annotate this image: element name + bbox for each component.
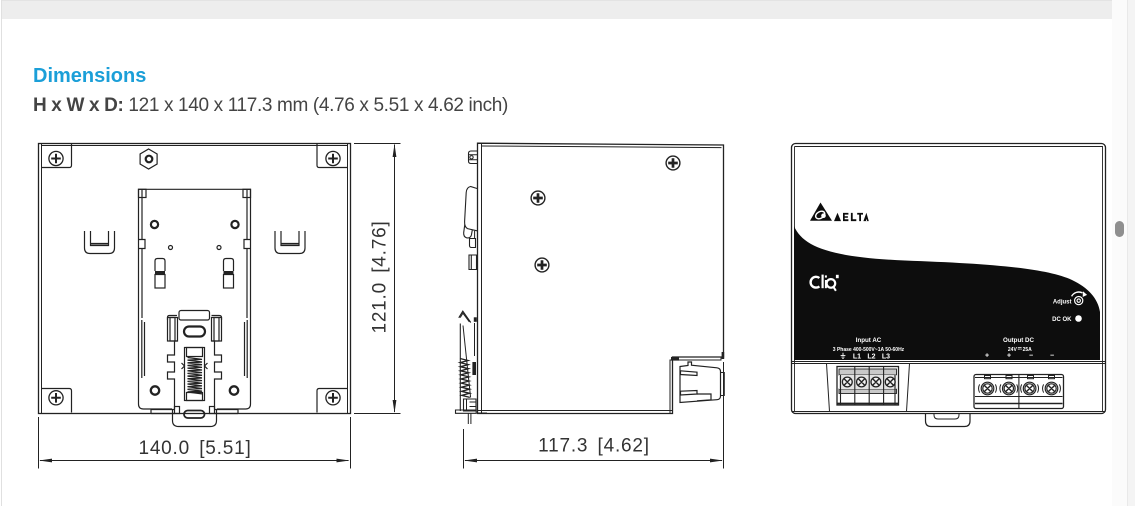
svg-text:DC OK: DC OK xyxy=(1052,317,1072,323)
svg-text:Input AC: Input AC xyxy=(856,337,882,344)
svg-text:3 Phase 400-500V~1A 50-60Hz: 3 Phase 400-500V~1A 50-60Hz xyxy=(833,347,905,353)
svg-text:−: − xyxy=(1050,353,1054,360)
svg-text:−: − xyxy=(1029,353,1033,360)
svg-text:L1: L1 xyxy=(853,354,861,361)
svg-text:+: + xyxy=(1007,353,1011,360)
svg-text:L2: L2 xyxy=(867,354,875,361)
svg-text:121.0 [4.76]: 121.0 [4.76] xyxy=(370,220,391,333)
svg-text:Output DC: Output DC xyxy=(1003,337,1034,344)
svg-text:L3: L3 xyxy=(882,354,890,361)
svg-text:117.3 [4.62]: 117.3 [4.62] xyxy=(538,436,650,457)
svg-text:+: + xyxy=(985,353,989,360)
svg-text:Adjust: Adjust xyxy=(1053,299,1072,305)
svg-text:140.0 [5.51]: 140.0 [5.51] xyxy=(138,438,251,459)
